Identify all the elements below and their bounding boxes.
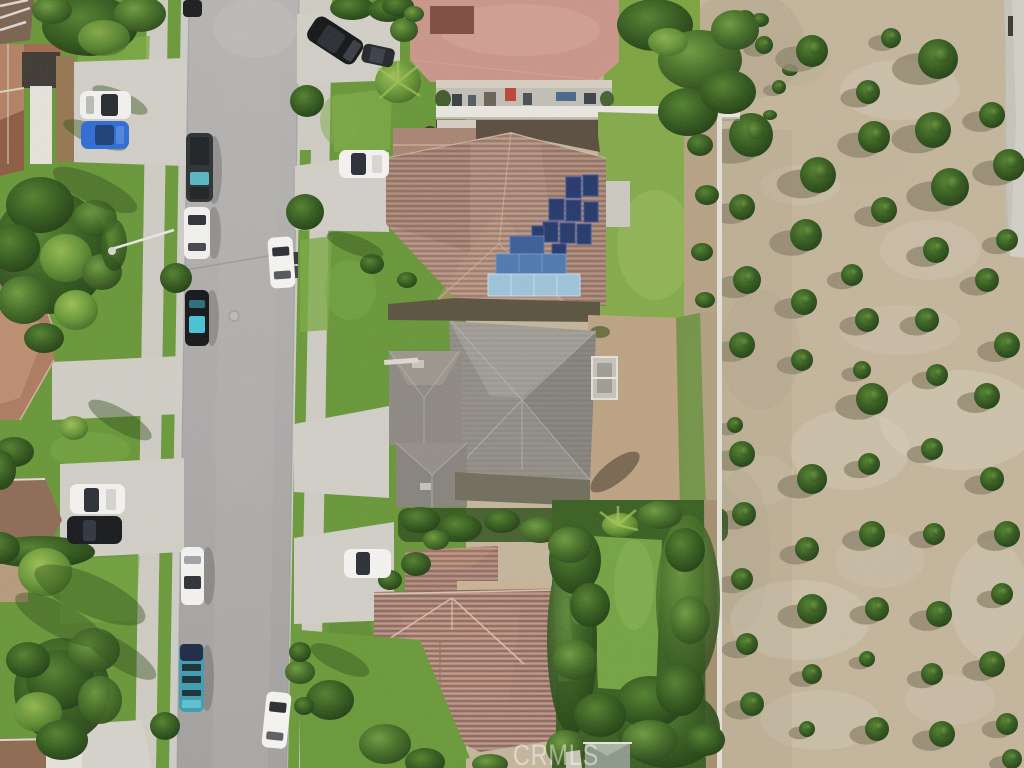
svg-text:CRMLS: CRMLS	[513, 739, 599, 768]
